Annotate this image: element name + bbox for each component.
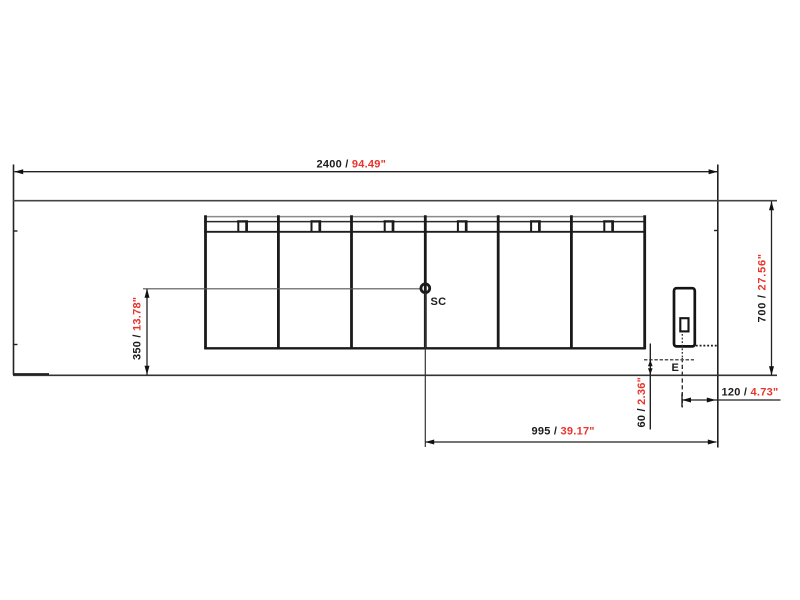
- svg-text:SC: SC: [431, 296, 447, 308]
- svg-text:700 / 27.56": 700 / 27.56": [757, 253, 769, 322]
- svg-text:120 / 4.73": 120 / 4.73": [722, 387, 779, 399]
- svg-text:2400 / 94.49": 2400 / 94.49": [317, 159, 387, 171]
- svg-text:350 / 13.78": 350 / 13.78": [132, 297, 144, 360]
- svg-text:60 / 2.36": 60 / 2.36": [636, 377, 648, 428]
- svg-text:995 / 39.17": 995 / 39.17": [532, 426, 595, 438]
- svg-text:E: E: [672, 362, 680, 374]
